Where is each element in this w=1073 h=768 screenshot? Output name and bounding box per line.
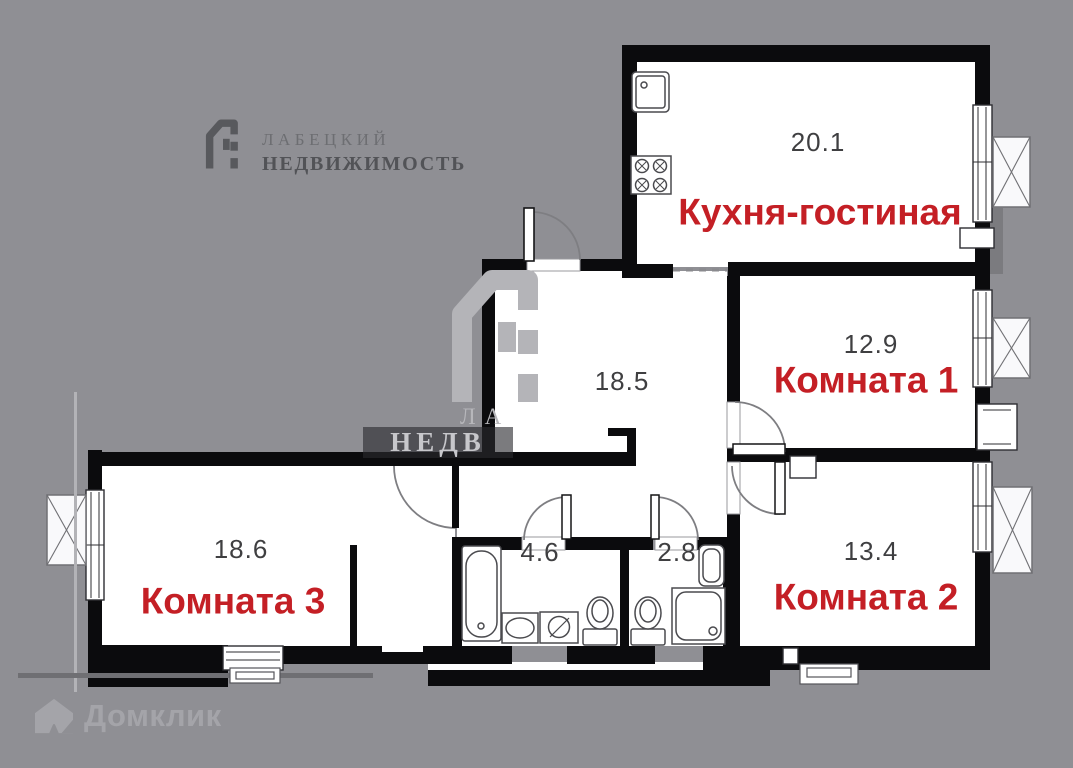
hall-area-value: 18.5	[595, 368, 650, 394]
vent-slot	[783, 648, 798, 664]
gray-vertical-line	[74, 392, 77, 692]
room1-door-leaf	[733, 444, 785, 455]
portal-watermark: Домклик	[33, 697, 222, 735]
washing-machine	[540, 612, 578, 643]
room1-label: Комната 1	[774, 362, 959, 399]
portal-name: Домклик	[84, 698, 222, 734]
sink-cabinet	[502, 613, 538, 643]
room1-area-value: 12.9	[844, 331, 899, 357]
room2-label: Комната 2	[774, 579, 959, 616]
room2-area-value: 13.4	[844, 538, 899, 564]
kitchen-sink	[632, 72, 669, 112]
room2-ac-box	[993, 487, 1032, 573]
bathroom-door-leaf	[562, 495, 571, 539]
agency-name-line2: НЕДВИЖИМОСТЬ	[262, 153, 466, 176]
gray-horizontal-line	[18, 673, 373, 678]
room1-ac-box	[993, 318, 1030, 378]
floor-plan-page: ЛАБЕЦКИЙ НЕДВИЖИМОСТЬ ЛА НЕДВ Домклик 20…	[0, 0, 1073, 768]
watermark-building-icon	[450, 266, 546, 406]
bathroom-area-value: 4.6	[520, 539, 559, 565]
glazing-box	[977, 404, 1017, 450]
room3-bottom-window	[223, 646, 283, 670]
jamb-box	[790, 456, 816, 478]
kitchen-ac-box	[993, 137, 1030, 207]
room2-door-leaf	[775, 462, 785, 514]
room3-ac-box	[47, 495, 86, 565]
entrance-door-leaf	[524, 208, 534, 261]
bathtub	[462, 546, 501, 641]
room2-window	[973, 462, 992, 552]
wc-area-value: 2.8	[657, 539, 696, 565]
stove	[631, 156, 671, 194]
agency-building-icon	[205, 118, 241, 170]
duct-box	[960, 228, 994, 248]
kitchen-label: Кухня-гостиная	[678, 194, 961, 231]
wc-sink	[699, 545, 724, 586]
room3-label: Комната 3	[141, 583, 326, 620]
agency-name-line1: ЛАБЕЦКИЙ	[262, 130, 466, 150]
domclick-house-icon	[33, 697, 75, 735]
wc-door-leaf	[651, 495, 659, 539]
watermark-strip: НЕДВ	[363, 427, 513, 458]
kitchen-window	[973, 105, 992, 222]
watermark-text-line2: НЕДВ	[390, 427, 486, 458]
shower	[672, 588, 725, 644]
kitchen-area-value: 20.1	[791, 129, 846, 155]
room3-area-value: 18.6	[214, 536, 269, 562]
room3-door-leaf	[452, 466, 459, 528]
agency-watermark: ЛАБЕЦКИЙ НЕДВИЖИМОСТЬ	[205, 118, 466, 176]
